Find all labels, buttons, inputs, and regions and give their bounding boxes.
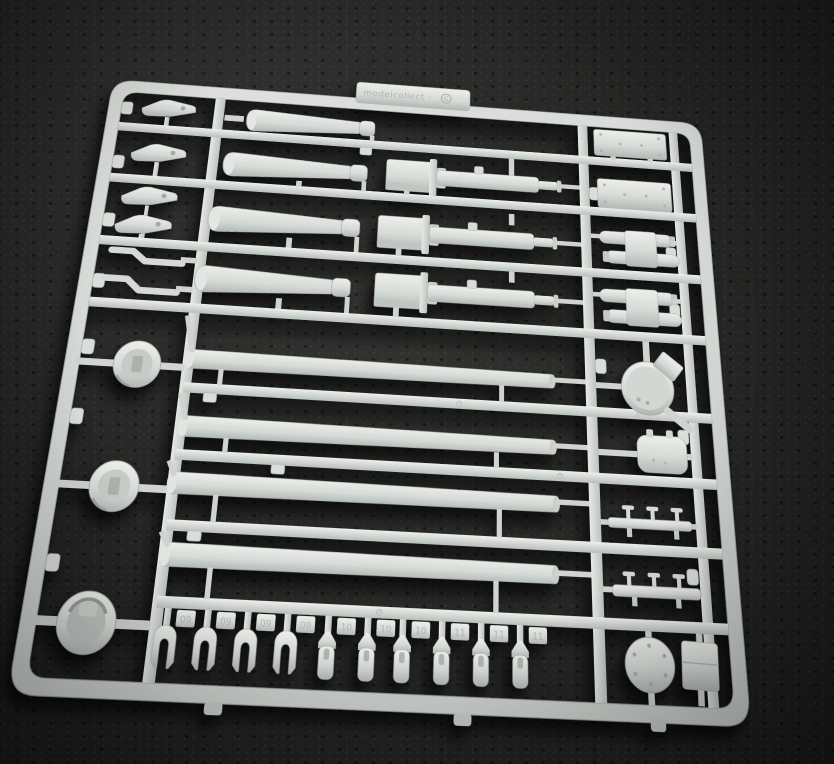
- gate-tab: [102, 212, 116, 226]
- gate-stub: [509, 214, 515, 226]
- wedge-clip-2: [128, 142, 187, 177]
- ejector-mark: [457, 401, 462, 407]
- gate-stub: [555, 241, 581, 247]
- gate-stub: [593, 292, 601, 297]
- svg-text:09: 09: [300, 620, 312, 632]
- gate-tab: [186, 530, 201, 541]
- clevis-fork-5: [316, 616, 338, 680]
- gate-tab: [203, 393, 217, 403]
- number-tab-9: 11: [490, 625, 508, 643]
- gate-stub: [404, 191, 410, 195]
- s-bracket-2: [104, 277, 178, 292]
- frame-foot: [453, 713, 471, 726]
- svg-text:09: 09: [220, 616, 233, 628]
- ejector-mark: [376, 609, 382, 615]
- gate-stub: [673, 299, 682, 304]
- gate-tab: [595, 359, 606, 374]
- svg-text:09: 09: [179, 614, 192, 626]
- svg-text:11: 11: [494, 629, 505, 641]
- gate-stub: [509, 159, 514, 176]
- sprue-letter: G: [443, 95, 448, 103]
- number-tab-2: 09: [216, 612, 237, 630]
- handrail-1: [600, 504, 699, 541]
- clevis-fork-9: [472, 623, 490, 687]
- tapered-jacket-2: [222, 152, 368, 186]
- gate-stub: [671, 241, 678, 246]
- svg-text:09: 09: [260, 618, 272, 630]
- gate-stub: [275, 298, 282, 309]
- gate-tab: [112, 155, 125, 169]
- clevis-fork-3: [232, 611, 260, 672]
- gate-tab: [121, 101, 134, 114]
- bolted-disc: [624, 630, 677, 706]
- photo-background: modelcollect - G: [0, 0, 834, 764]
- gate-stub: [370, 135, 375, 141]
- number-tab-3: 09: [256, 614, 276, 632]
- svg-text:11: 11: [532, 631, 543, 643]
- gate-stub: [395, 249, 401, 257]
- gate-stub: [224, 115, 244, 122]
- svg-text:10: 10: [380, 623, 392, 635]
- gate-stub: [393, 308, 399, 318]
- sprue: modelcollect - G: [0, 46, 790, 764]
- clevis-fork-6: [356, 617, 377, 681]
- deck-panel-2: [597, 178, 672, 212]
- gate-stub: [180, 257, 197, 264]
- tapered-jacket-4: [193, 265, 351, 301]
- gate-stub: [344, 297, 350, 313]
- number-tab-10: 11: [529, 627, 548, 645]
- number-tab-6: 10: [376, 619, 395, 637]
- gate-tab: [360, 147, 372, 155]
- s-bracket-1: [110, 250, 183, 264]
- gate-stub: [361, 181, 366, 192]
- gate-stub: [286, 237, 293, 247]
- number-tab-1: 09: [175, 610, 196, 628]
- frame-foot: [203, 702, 223, 716]
- gun-assembly-group: [373, 149, 584, 329]
- gate-stub: [509, 272, 515, 283]
- gate-stub: [556, 298, 583, 304]
- drum-cupola: [24, 588, 154, 657]
- number-tab-5: 10: [337, 618, 357, 636]
- svg-text:11: 11: [454, 627, 465, 639]
- gate-stub: [591, 233, 600, 238]
- gate-tab: [69, 408, 84, 424]
- number-tab-8: 11: [451, 623, 470, 641]
- gate-tab: [44, 553, 60, 571]
- gate-tab: [81, 339, 96, 355]
- ejector-mark: [557, 473, 562, 479]
- number-tab-7: 10: [411, 621, 430, 639]
- number-tab-4: 09: [296, 616, 316, 634]
- tapered-jacket-3: [206, 206, 360, 241]
- gun-assembly-2: [377, 212, 558, 263]
- gun-assembly-3: [374, 269, 559, 322]
- gate-stub: [296, 181, 302, 187]
- sprue-drawing: modelcollect - G: [0, 46, 790, 764]
- frame-foot: [650, 719, 666, 732]
- svg-text:10: 10: [340, 622, 352, 634]
- gate-tab: [686, 569, 698, 585]
- clevis-fork-4: [272, 613, 299, 674]
- ring-mount-2: [48, 457, 171, 514]
- clevis-fork-8: [432, 621, 451, 685]
- turret-hatch-disc: [595, 338, 695, 434]
- svg-text:10: 10: [415, 625, 427, 637]
- clevis-fork-10: [511, 625, 529, 689]
- gate-stub: [560, 184, 580, 190]
- gate-stub: [176, 286, 194, 293]
- gate-tab: [271, 464, 285, 474]
- wedge-clip-1: [140, 98, 197, 127]
- sprue-shadow-layer: modelcollect - G: [40, 28, 760, 728]
- gate-stub: [354, 237, 360, 253]
